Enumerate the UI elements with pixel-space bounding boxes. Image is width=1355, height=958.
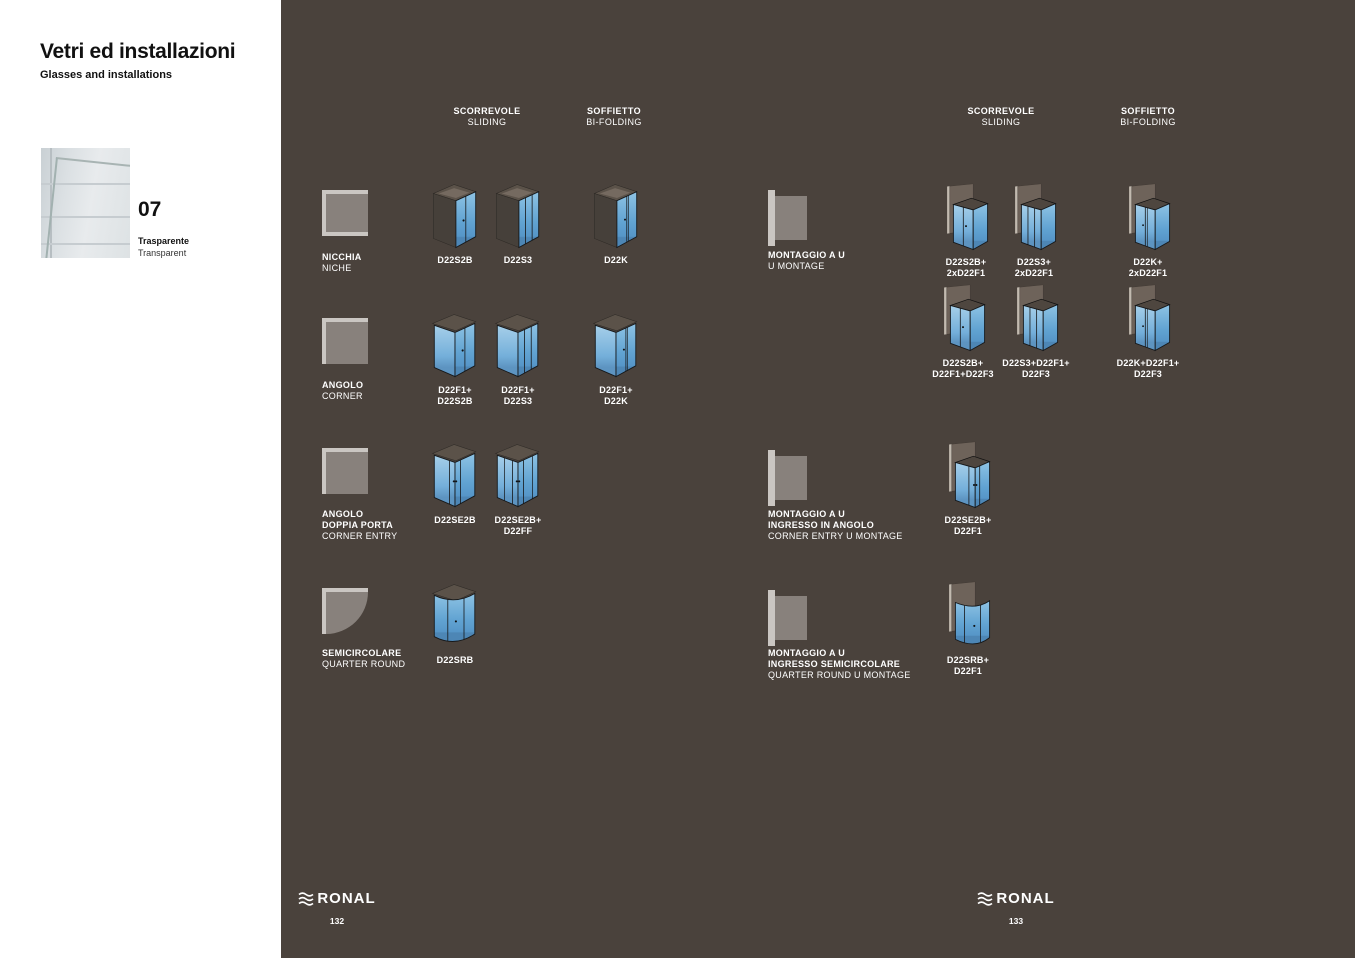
product-code: D22S2B+ — [946, 257, 987, 268]
row-label-corner: ANGOLO CORNER — [322, 380, 363, 402]
product-code: D22SE2B+ — [495, 515, 542, 526]
u-bar — [768, 590, 775, 646]
shower-u-quarter-round-icon — [939, 580, 997, 652]
swatch-name-it: Trasparente — [138, 236, 189, 246]
product-code: D22K — [599, 396, 632, 407]
row-label-it: ANGOLO — [322, 509, 397, 520]
shower-corner-entry-fixed-icon — [489, 440, 547, 512]
quarter-round-plan-icon — [322, 588, 368, 634]
product-code: 2xD22F1 — [946, 268, 987, 279]
header-it: SCORREVOLE — [936, 106, 1066, 117]
shower-quarter-round-icon — [426, 580, 484, 652]
row-label-quarter-round: SEMICIRCOLARE QUARTER ROUND — [322, 648, 405, 670]
product-cell: D22SRB+D22F1 — [926, 580, 1010, 677]
row-label-u-montage: MONTAGGIO A U U MONTAGE — [768, 250, 845, 272]
product-code: D22F3 — [1117, 369, 1180, 380]
product-code: D22S2B — [437, 255, 472, 266]
u-square — [775, 196, 807, 240]
row-label-it: MONTAGGIO A U — [768, 509, 903, 520]
row-label-en: CORNER — [322, 391, 363, 402]
product-code: D22F1 — [947, 666, 989, 677]
product-code: D22SRB — [437, 655, 474, 666]
product-code: D22S2B — [437, 396, 472, 407]
product-cell: D22F1+D22S3 — [476, 310, 560, 407]
product-code: 2xD22F1 — [1129, 268, 1167, 279]
header-en: BI-FOLDING — [1083, 117, 1213, 128]
product-code: D22F3 — [1002, 369, 1069, 380]
product-cell: D22SRB — [413, 580, 497, 666]
row-label-en: QUARTER ROUND U MONTAGE — [768, 670, 911, 681]
u-square — [775, 596, 807, 640]
swatch-name-en: Transparent — [138, 248, 186, 258]
row-label-quarter-round-u: MONTAGGIO A U INGRESSO SEMICIRCOLARE QUA… — [768, 648, 911, 681]
product-code: D22S3+ — [1015, 257, 1053, 268]
row-label-it2: INGRESSO SEMICIRCOLARE — [768, 659, 911, 670]
product-code: D22K — [604, 255, 628, 266]
header-en: SLIDING — [422, 117, 552, 128]
product-cell: D22S3+D22F1+D22F3 — [986, 283, 1086, 380]
u-square — [775, 456, 807, 500]
row-label-it: MONTAGGIO A U — [768, 648, 911, 659]
column-header-bifolding-left: SOFFIETTO BI-FOLDING — [549, 106, 679, 128]
header-it: SOFFIETTO — [549, 106, 679, 117]
ronal-waves-icon — [298, 891, 314, 907]
product-code: D22SE2B — [434, 515, 475, 526]
shower-u-corner-entry-icon — [939, 440, 997, 512]
shower-corner-sliding3-icon — [489, 310, 547, 382]
product-cell: D22K — [574, 180, 658, 266]
header-en: BI-FOLDING — [549, 117, 679, 128]
row-label-en: U MONTAGE — [768, 261, 845, 272]
ronal-waves-icon — [977, 891, 993, 907]
product-cell: D22S3+2xD22F1 — [992, 182, 1076, 279]
product-code: D22K+ — [1129, 257, 1167, 268]
niche-plan-icon — [322, 190, 368, 236]
product-cell: D22K+D22F1+D22F3 — [1100, 283, 1196, 380]
row-label-en: CORNER ENTRY — [322, 531, 397, 542]
row-label-niche: NICCHIA NICHE — [322, 252, 362, 274]
shower-sliding3-icon — [489, 180, 547, 252]
product-code: D22K+D22F1+ — [1117, 358, 1180, 369]
product-cell: D22SE2B+D22FF — [476, 440, 560, 537]
product-code: D22F1 — [945, 526, 992, 537]
column-header-bifolding-right: SOFFIETTO BI-FOLDING — [1083, 106, 1213, 128]
product-cell: D22SE2B+D22F1 — [926, 440, 1010, 537]
shower-bifold-icon — [587, 180, 645, 252]
product-cell: D22K+2xD22F1 — [1106, 182, 1190, 279]
u-bar — [768, 190, 775, 246]
glass-edge — [41, 157, 130, 258]
catalog-page: { "sidebar": { "title": "Vetri ed instal… — [0, 0, 1355, 958]
header-it: SOFFIETTO — [1083, 106, 1213, 117]
shower-u-sliding3-icon — [1005, 182, 1063, 254]
footer-right: RONAL 133 — [966, 890, 1066, 926]
page-number-left: 132 — [287, 916, 387, 926]
corner-plan-icon — [322, 318, 368, 364]
product-code: D22SE2B+ — [945, 515, 992, 526]
row-label-it2: INGRESSO IN ANGOLO — [768, 520, 903, 531]
brand-name: RONAL — [996, 890, 1054, 907]
shower-u-sliding2-icon — [937, 182, 995, 254]
product-cell: D22F1+D22K — [574, 310, 658, 407]
footer-left: RONAL 132 — [287, 890, 387, 926]
quarter-fill — [326, 592, 368, 634]
page-subtitle: Glasses and installations — [40, 69, 172, 81]
product-code: D22F1+D22F3 — [932, 369, 993, 380]
row-label-corner-entry: ANGOLO DOPPIA PORTA CORNER ENTRY — [322, 509, 397, 542]
shower-u-sliding3-fixed-icon — [1007, 283, 1065, 355]
row-label-it2: DOPPIA PORTA — [322, 520, 397, 531]
product-code: D22S2B+ — [932, 358, 993, 369]
row-label-it: SEMICIRCOLARE — [322, 648, 405, 659]
product-code: D22F1+ — [501, 385, 534, 396]
column-header-sliding-left: SCORREVOLE SLIDING — [422, 106, 552, 128]
row-label-it: ANGOLO — [322, 380, 363, 391]
catalog-panel: SCORREVOLE SLIDING SOFFIETTO BI-FOLDING … — [281, 0, 1355, 958]
row-label-it: NICCHIA — [322, 252, 362, 263]
product-code: 2xD22F1 — [1015, 268, 1053, 279]
row-label-en: QUARTER ROUND — [322, 659, 405, 670]
u-mount-plan-icon — [768, 450, 814, 506]
u-bar — [768, 450, 775, 506]
product-code: D22S3 — [501, 396, 534, 407]
product-cell: D22S3 — [476, 180, 560, 266]
product-code: D22F1+ — [599, 385, 632, 396]
header-en: SLIDING — [936, 117, 1066, 128]
ronal-logo: RONAL — [298, 890, 375, 907]
shower-corner-bifold-icon — [587, 310, 645, 382]
sidebar: Vetri ed installazioni Glasses and insta… — [0, 0, 281, 958]
product-code: D22S3+D22F1+ — [1002, 358, 1069, 369]
column-header-sliding-right: SCORREVOLE SLIDING — [936, 106, 1066, 128]
page-number-right: 133 — [966, 916, 1066, 926]
row-label-corner-entry-u: MONTAGGIO A U INGRESSO IN ANGOLO CORNER … — [768, 509, 903, 542]
row-label-en: NICHE — [322, 263, 362, 274]
u-mount-plan-icon — [768, 190, 814, 246]
shower-u-bifold-fixed-icon — [1119, 283, 1177, 355]
header-it: SCORREVOLE — [422, 106, 552, 117]
page-title: Vetri ed installazioni — [40, 40, 235, 64]
row-label-it: MONTAGGIO A U — [768, 250, 845, 261]
ronal-logo: RONAL — [977, 890, 1054, 907]
product-code: D22F1+ — [437, 385, 472, 396]
corner-entry-plan-icon — [322, 448, 368, 494]
u-mount-plan-icon — [768, 590, 814, 646]
brand-name: RONAL — [317, 890, 375, 907]
product-code: D22SRB+ — [947, 655, 989, 666]
product-code: D22FF — [495, 526, 542, 537]
product-code: D22S3 — [504, 255, 533, 266]
swatch-number: 07 — [138, 198, 161, 222]
shower-u-sliding2-fixed-icon — [934, 283, 992, 355]
glass-swatch-photo — [41, 148, 130, 258]
shower-u-bifold-icon — [1119, 182, 1177, 254]
row-label-en: CORNER ENTRY U MONTAGE — [768, 531, 903, 542]
